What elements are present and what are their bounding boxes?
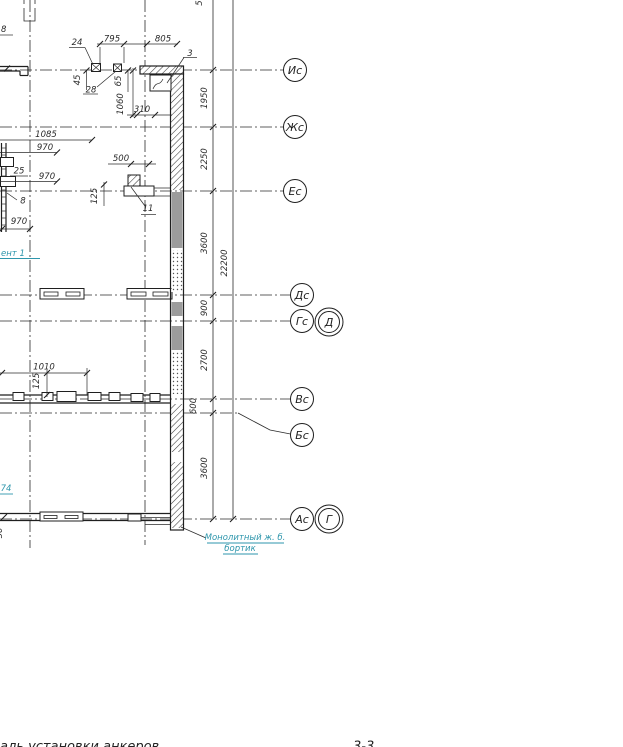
dim-label-top-partial: 5 — [195, 0, 205, 5]
dim-label-900: 900 — [200, 300, 210, 316]
plan-drawing: 1950 2250 3600 900 2700 600 3600 22200 5… — [0, 0, 623, 747]
dim-label-970-3: 970 — [11, 217, 27, 227]
dim-label-8: 8 — [20, 197, 26, 207]
dim-label-805: 805 — [155, 35, 171, 45]
dim-label-1950: 1950 — [200, 87, 210, 109]
dim-label-600: 600 — [189, 398, 199, 414]
axis-label-es: Ес — [289, 185, 302, 198]
axis-label-is: Ис — [288, 64, 302, 77]
dim-label-795: 795 — [104, 35, 120, 45]
dim-label-74: 74 — [1, 484, 12, 494]
axis-label-d: Д — [324, 316, 334, 329]
dim-label-24: 24 — [72, 38, 83, 48]
dim-label-500: 500 — [113, 154, 129, 164]
dim-label-970-2: 970 — [39, 172, 55, 182]
axis-label-as: Ас — [294, 513, 309, 526]
dim-label-8-top: 8 — [1, 25, 7, 35]
dim-label-3600-b: 3600 — [200, 457, 210, 479]
monolithic-note-line2: бортик — [224, 544, 256, 554]
axis-label-gs: Гс — [296, 315, 308, 328]
dim-label-2700: 2700 — [200, 349, 210, 371]
wall-as — [0, 512, 184, 525]
axis-grid-lines — [0, 0, 291, 548]
dim-label-1085: 1085 — [35, 130, 57, 140]
axis-label-vs: Вс — [295, 393, 309, 406]
axis-label-g: Г — [326, 513, 333, 526]
dim-label-1060: 1060 — [116, 93, 126, 115]
anchor-plate-es — [124, 175, 171, 196]
dim-label-65: 65 — [114, 76, 124, 87]
dim-label-1010: 1010 — [33, 363, 55, 373]
fragment-note-partial: ент 1 — [1, 249, 25, 259]
dim-label-45: 45 — [73, 75, 83, 86]
dim-label-3600-a: 3600 — [200, 232, 210, 254]
column-bracket-symbol — [24, 0, 35, 21]
dim-label-970-1: 970 — [37, 143, 53, 153]
left-wall-stub-top — [0, 66, 28, 76]
section-label-partial: 3-3 — [353, 740, 374, 747]
axis-label-ds: Дс — [294, 289, 310, 302]
bottom-caption: аль установки анкеров 3-3 — [0, 740, 374, 747]
dim-label-2250: 2250 — [200, 148, 210, 170]
monolithic-note-line1: Монолитный ж. б. — [205, 533, 286, 543]
dim-label-25: 25 — [14, 167, 25, 177]
axis-label-zhs: Жс — [285, 121, 304, 134]
dim-label-310: 310 — [134, 105, 150, 115]
left-dimension-cluster: 8 1085 970 25 970 8 970 500 125 11 1010 — [0, 25, 156, 538]
anchor-plate-group-ds-2 — [127, 289, 172, 300]
dim-label-22200: 22200 — [220, 249, 230, 276]
dim-label-50-partial: 50 — [0, 528, 5, 539]
drawing-canvas: 1950 2250 3600 900 2700 600 3600 22200 5… — [0, 0, 623, 747]
dim-label-125-2: 125 — [32, 373, 42, 389]
dim-label-125-1: 125 — [90, 188, 100, 204]
anchor-plate-group-ds-1 — [40, 289, 84, 300]
axis-label-bs: Бс — [295, 429, 309, 442]
dimension-column: 1950 2250 3600 900 2700 600 3600 22200 5 — [189, 0, 236, 522]
caption-text-partial: аль установки анкеров — [0, 740, 159, 747]
